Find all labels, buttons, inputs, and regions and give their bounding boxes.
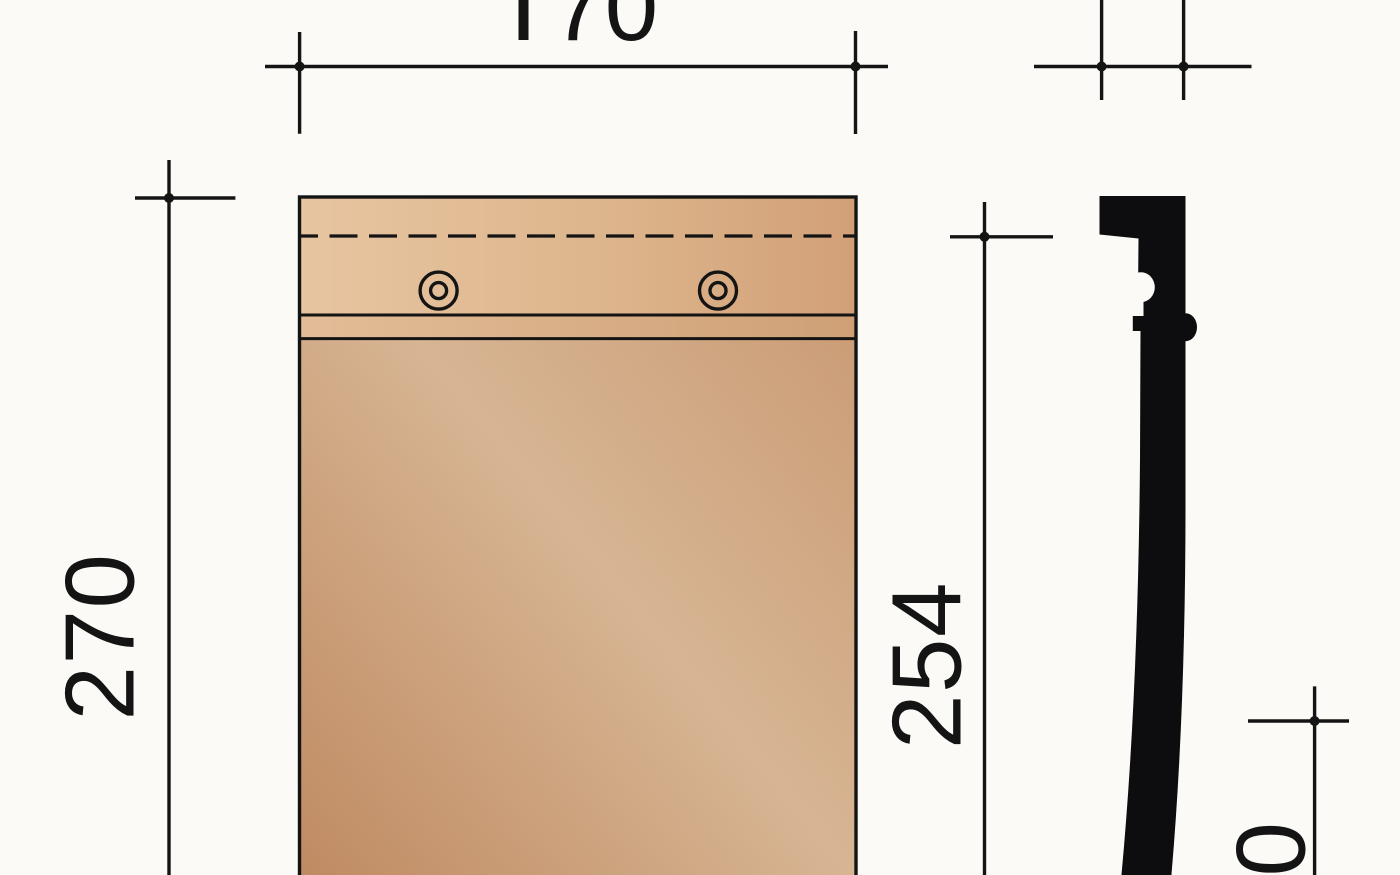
svg-text:0: 0	[1216, 822, 1326, 875]
svg-text:254: 254	[871, 581, 981, 749]
svg-text:70: 70	[551, 0, 658, 61]
svg-text:270: 270	[45, 552, 155, 720]
